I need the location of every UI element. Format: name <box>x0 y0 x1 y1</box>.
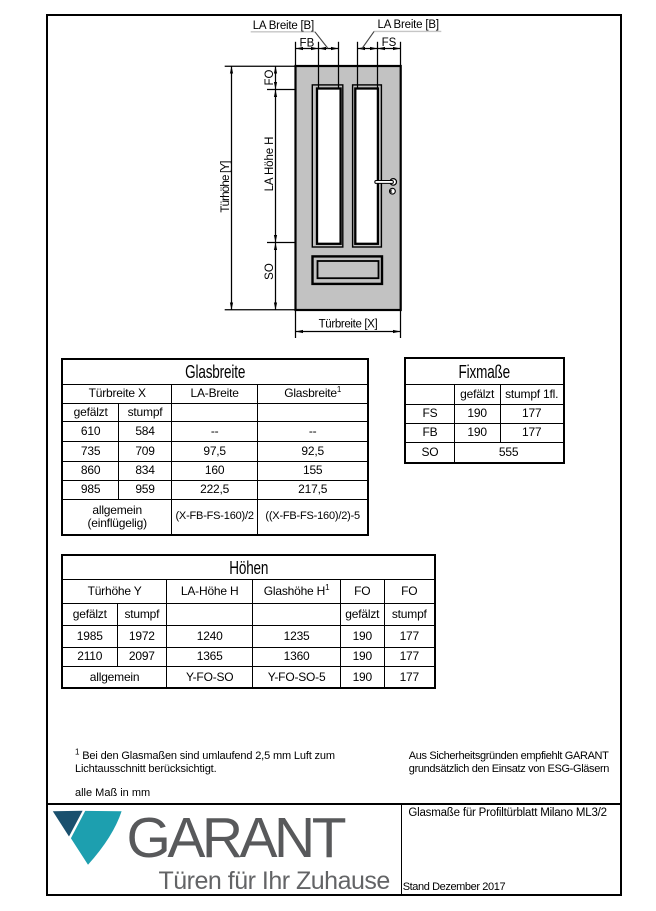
svg-text:SO: SO <box>264 263 276 280</box>
svg-text:FS: FS <box>382 37 397 49</box>
svg-text:FO: FO <box>264 69 276 85</box>
svg-text:LA Breite [B]: LA Breite [B] <box>253 20 314 32</box>
svg-text:Türhöhe [Y]: Türhöhe [Y] <box>220 161 232 213</box>
svg-text:LA Höhe H: LA Höhe H <box>264 137 276 192</box>
svg-text:Türbreite [X]: Türbreite [X] <box>319 319 378 331</box>
svg-text:LA Breite [B]: LA Breite [B] <box>378 19 439 31</box>
svg-text:FB: FB <box>300 37 315 49</box>
